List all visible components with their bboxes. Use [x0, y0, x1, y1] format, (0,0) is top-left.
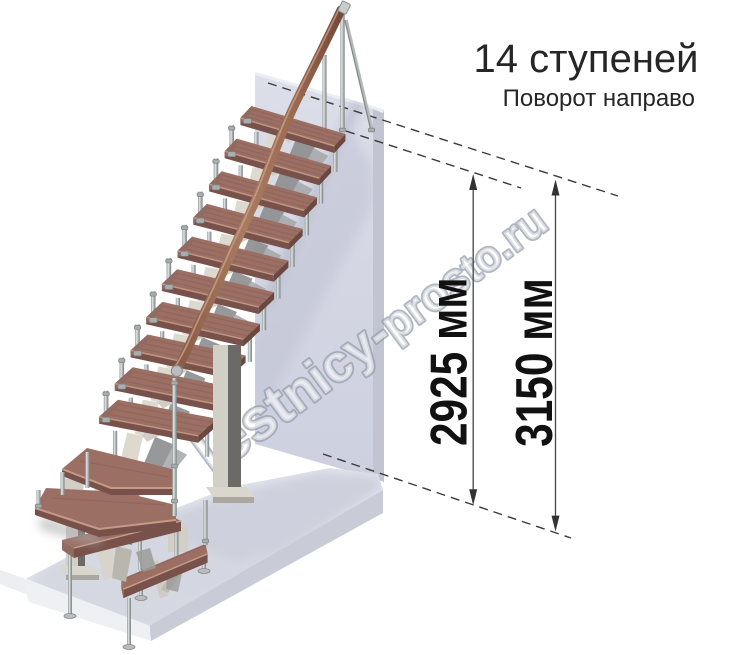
- svg-text:3150 мм: 3150 мм: [506, 278, 564, 447]
- svg-text:14 ступеней: 14 ступеней: [474, 37, 699, 81]
- svg-text:Поворот направо: Поворот направо: [503, 85, 695, 112]
- svg-text:2925 мм: 2925 мм: [420, 277, 478, 446]
